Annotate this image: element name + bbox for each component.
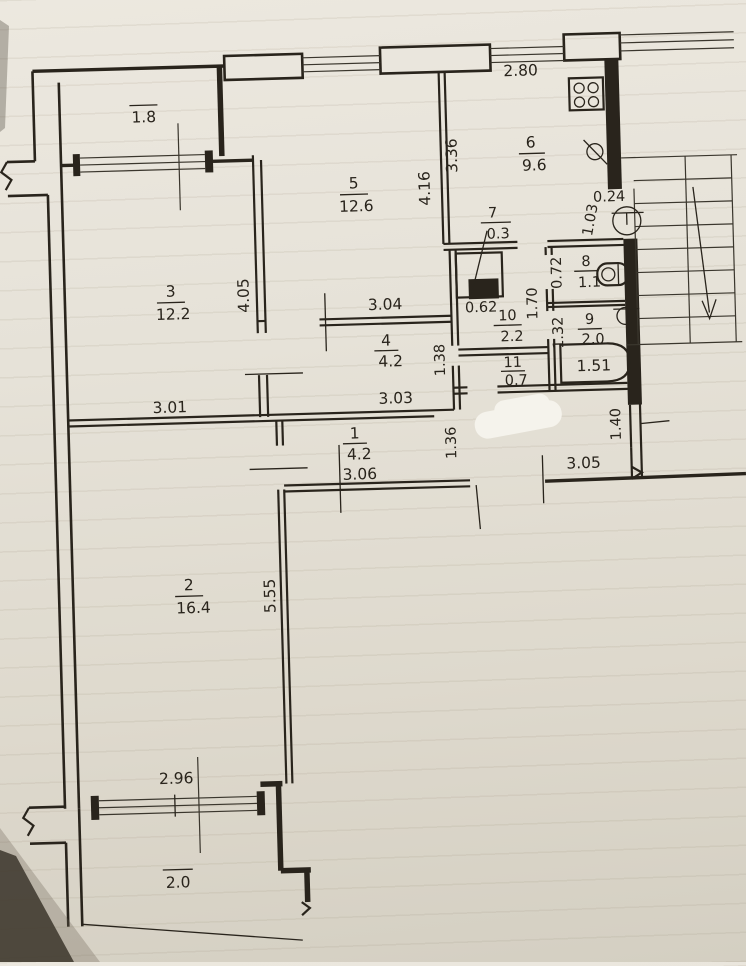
balcony-area: 1.8 — [131, 108, 156, 127]
stairs-down-arrow-icon — [693, 186, 717, 319]
wall-break-icon — [23, 808, 34, 836]
dim-room5-depth: 4.16 — [415, 171, 434, 206]
room-number: 8 — [581, 254, 591, 270]
room-area: 12.6 — [339, 197, 374, 216]
balcony-bottom-label: 2.0 — [163, 869, 194, 892]
balcony-area: 2.0 — [166, 873, 191, 892]
entry-door-swing-icon — [611, 206, 644, 235]
room-3-label: 3 12.2 — [155, 282, 191, 324]
room-area: 4.2 — [378, 352, 403, 371]
balcony-slab-edge — [82, 918, 303, 946]
bath-right-wall — [623, 239, 642, 405]
window-top-3 — [620, 32, 734, 51]
photo-shadow-soft — [0, 828, 100, 962]
room-number: 1 — [349, 424, 359, 442]
window-balcony-bottom — [91, 791, 266, 820]
room-9-label: 9 2.0 — [577, 311, 605, 348]
door-swing-room5 — [325, 293, 327, 351]
room-number: 11 — [503, 355, 522, 372]
plan: 1 4.2 2 16.4 3 12.2 4 4.2 5 12.6 6 9.6 — [0, 30, 746, 948]
room-area: 0.7 — [505, 373, 529, 390]
dim-corridor-depth: 1.70 — [525, 287, 542, 320]
room-1-label: 1 4.2 — [342, 424, 371, 464]
dimension-tick — [178, 123, 180, 210]
dim-room4-depth: 1.38 — [432, 344, 449, 377]
door-swing-room2 — [250, 468, 308, 470]
room-area: 0.3 — [486, 226, 510, 243]
dim-entry-jamb: 0.24 — [593, 189, 626, 206]
room-area: 1.1 — [578, 275, 602, 292]
interior-walls — [59, 56, 746, 790]
room-number: 6 — [525, 133, 535, 151]
dimension-tick — [542, 455, 543, 503]
balcony-top-label: 1.8 — [129, 105, 158, 127]
room-area: 12.2 — [156, 305, 191, 324]
door-swing-hall — [476, 485, 480, 529]
room-4-label: 4 4.2 — [374, 331, 403, 371]
dim-kitchen-depth: 3.36 — [442, 138, 461, 173]
dim-tub-length: 1.51 — [576, 356, 611, 375]
wall-break-icon — [1, 162, 12, 190]
top-wall-pier — [564, 33, 621, 61]
room-area: 2.2 — [500, 329, 524, 346]
sink-icon — [584, 139, 608, 165]
dim-bath-width: 1.32 — [550, 316, 567, 349]
dim-room2-depth: 5.55 — [261, 578, 280, 613]
dim-hall-width: 3.06 — [342, 465, 377, 484]
window-top-2 — [490, 46, 564, 62]
toilet-icon — [597, 263, 629, 286]
room-2-label: 2 16.4 — [175, 576, 211, 618]
room-number: 7 — [488, 205, 498, 221]
room-area: 4.2 — [347, 445, 372, 464]
dim-room3-depth: 4.05 — [234, 278, 253, 313]
door-swing-room3 — [245, 373, 303, 375]
room-area: 9.6 — [522, 156, 547, 175]
top-wall-pier — [224, 54, 303, 80]
room-6-label: 6 9.6 — [518, 133, 546, 175]
top-wall-pier — [380, 45, 491, 74]
room-11-label: 11 0.7 — [501, 355, 528, 390]
room-number: 2 — [184, 576, 194, 594]
dim-kitchen-width: 2.80 — [503, 61, 538, 80]
room-number: 3 — [165, 282, 175, 300]
room-number: 4 — [381, 331, 391, 349]
kitchen-right-wall — [604, 59, 622, 189]
dim-closet-width: 0.62 — [465, 299, 498, 316]
room-area: 2.0 — [581, 331, 605, 348]
dim-hall2-width: 3.05 — [566, 454, 601, 473]
dim-wc-width: 0.72 — [549, 256, 566, 289]
wall-break-icon — [302, 902, 310, 915]
whiteout-blob — [471, 390, 564, 441]
door-swing-tick — [339, 445, 341, 513]
room-number: 10 — [498, 308, 517, 325]
room-10-label: 10 2.2 — [493, 308, 524, 346]
floor-plan-svg: 1 4.2 2 16.4 3 12.2 4 4.2 5 12.6 6 9.6 — [0, 0, 746, 962]
room-5-label: 5 12.6 — [338, 174, 374, 216]
stove-icon — [569, 77, 604, 110]
dim-side-door-width: 1.40 — [608, 408, 625, 441]
dim-room5-width: 3.04 — [368, 295, 403, 314]
photo-shadow-edge — [0, 20, 9, 132]
dim-entry-width: 1.03 — [580, 203, 602, 238]
room-number: 5 — [348, 174, 358, 192]
window-top-1 — [302, 56, 380, 72]
dim-balcony-window-width: 2.96 — [159, 769, 194, 788]
dim-room4-width: 3.03 — [378, 389, 413, 408]
dim-room3-width: 3.01 — [152, 398, 187, 417]
dim-hall-depth: 1.36 — [444, 426, 461, 459]
door-swing-side — [641, 421, 669, 424]
room-number: 9 — [585, 312, 595, 328]
room-area: 16.4 — [176, 599, 211, 618]
